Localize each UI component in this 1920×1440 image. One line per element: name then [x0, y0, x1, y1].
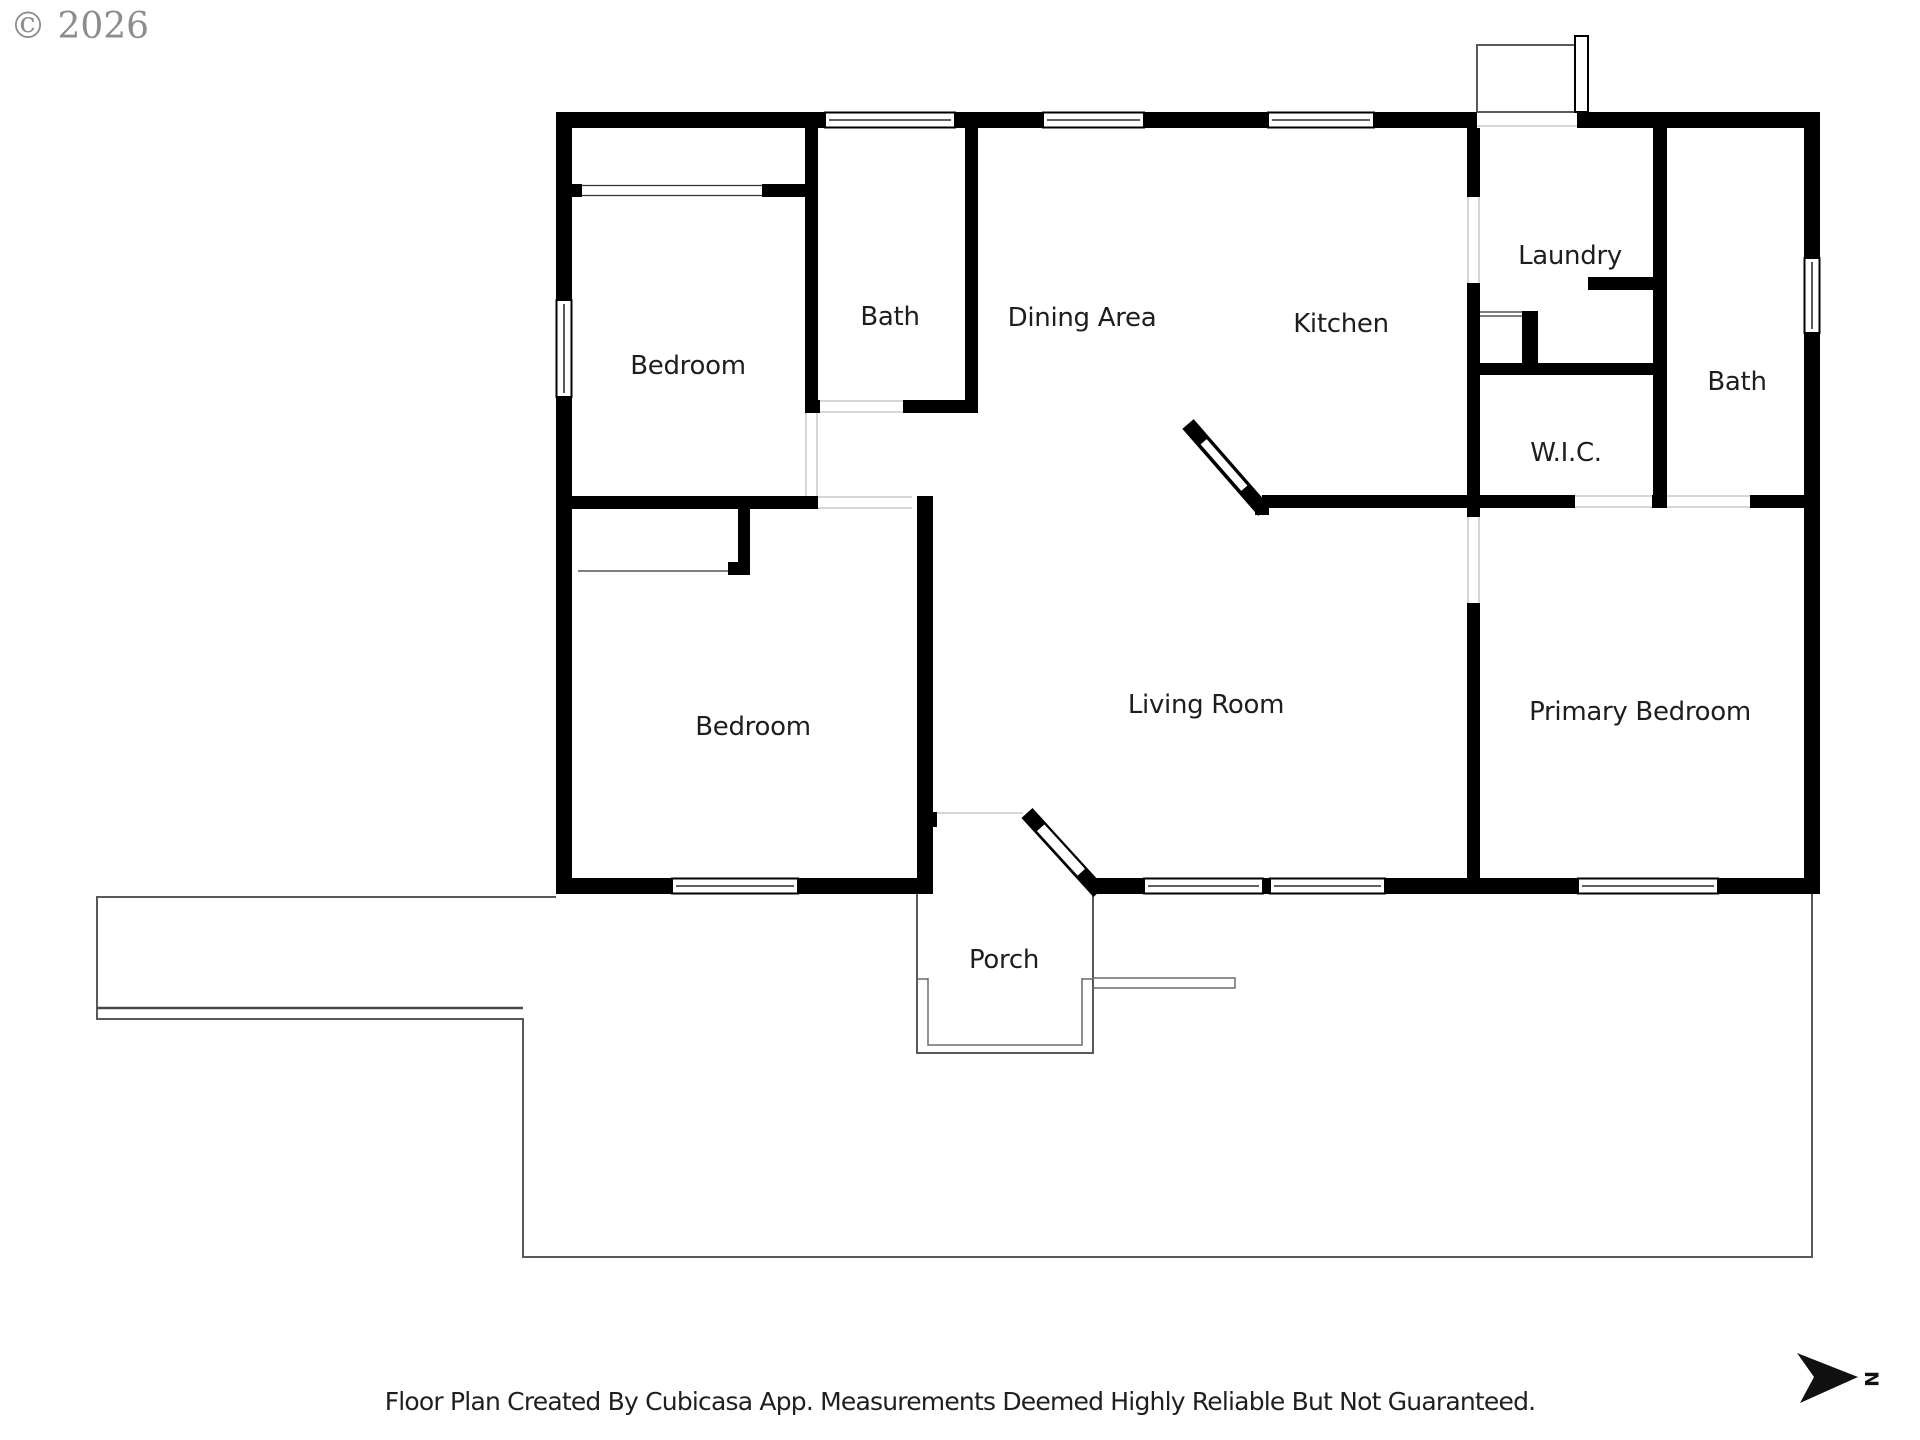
front-entry-door [1027, 813, 1099, 892]
room-labels: Bedroom Bath Dining Area Kitchen Laundry… [630, 241, 1766, 975]
north-label: N [1860, 1371, 1882, 1387]
room-label-bedroom-top-left: Bedroom [630, 351, 746, 381]
room-label-dining-area: Dining Area [1008, 303, 1157, 333]
window [557, 300, 572, 397]
window [825, 113, 955, 128]
walkway-outline [1093, 978, 1235, 988]
room-label-bedroom-bottom-left: Bedroom [695, 712, 811, 742]
window [1270, 879, 1385, 894]
window [1144, 879, 1263, 894]
floor-plan-page: Bedroom Bath Dining Area Kitchen Laundry… [0, 0, 1920, 1440]
room-label-laundry: Laundry [1518, 241, 1622, 271]
room-label-bath-top: Bath [860, 302, 919, 332]
porch-outline [917, 894, 1235, 1053]
window [1805, 258, 1820, 333]
kitchen-angled-door [1188, 424, 1269, 515]
window [1043, 113, 1144, 128]
window [672, 879, 798, 894]
north-arrow-icon [1797, 1353, 1858, 1403]
copyright-watermark: © 2026 [10, 6, 149, 47]
footer-disclaimer: Floor Plan Created By Cubicasa App. Meas… [385, 1387, 1536, 1416]
back-door-leaf [1575, 36, 1588, 112]
north-arrow: N [1797, 1353, 1882, 1403]
room-label-kitchen: Kitchen [1293, 309, 1389, 339]
window [1578, 879, 1718, 894]
window [1268, 113, 1374, 128]
floor-plan-svg: Bedroom Bath Dining Area Kitchen Laundry… [0, 0, 1920, 1440]
room-label-bath-right: Bath [1707, 367, 1766, 397]
room-label-primary-bedroom: Primary Bedroom [1529, 697, 1751, 727]
room-label-living-room: Living Room [1128, 690, 1284, 720]
deck-outline [97, 894, 1812, 1257]
room-label-wic: W.I.C. [1530, 438, 1602, 468]
back-stoop [1477, 36, 1588, 112]
room-label-porch: Porch [969, 945, 1039, 975]
